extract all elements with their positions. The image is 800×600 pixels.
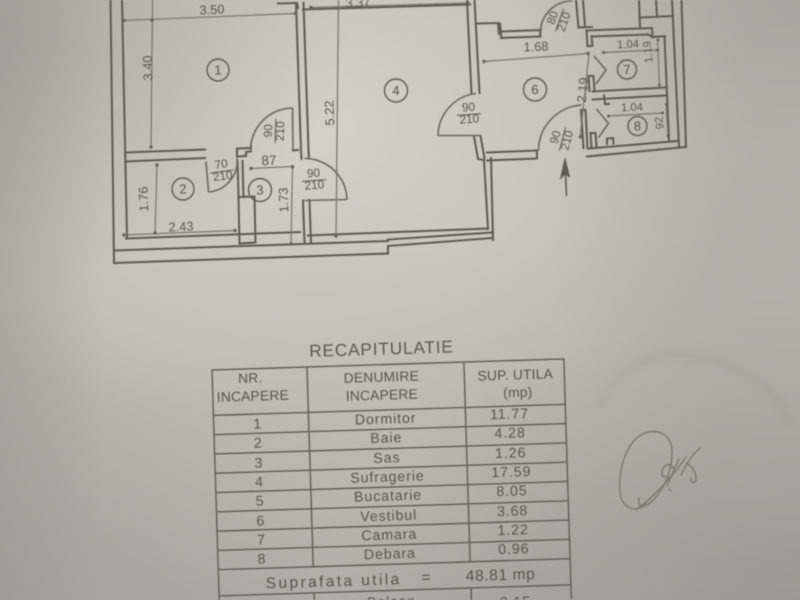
svg-text:1.04: 1.04 — [621, 102, 643, 115]
svg-text:Sas: Sas — [373, 450, 401, 467]
svg-text:Debara: Debara — [364, 546, 416, 564]
svg-text:11.77: 11.77 — [490, 406, 529, 423]
svg-text:Balcon: Balcon — [367, 594, 416, 600]
svg-text:Sufragerie: Sufragerie — [350, 468, 425, 486]
svg-text:6: 6 — [256, 513, 265, 529]
svg-text:4.28: 4.28 — [494, 425, 526, 442]
svg-text:2: 2 — [179, 181, 187, 196]
svg-text:Dormitor: Dormitor — [355, 411, 417, 429]
svg-text:INCAPERE: INCAPERE — [217, 388, 290, 405]
svg-text:1.22: 1.22 — [497, 522, 529, 539]
svg-text:3.15: 3.15 — [500, 594, 532, 600]
svg-text:3: 3 — [254, 455, 263, 471]
svg-text:SUP. UTILA: SUP. UTILA — [477, 366, 553, 383]
svg-text:2.19: 2.19 — [574, 77, 591, 103]
svg-text:INCAPERE: INCAPERE — [346, 387, 419, 404]
svg-text:(mp): (mp) — [503, 384, 533, 400]
svg-text:1.26: 1.26 — [495, 445, 527, 462]
svg-text:5.22: 5.22 — [322, 100, 338, 125]
svg-text:Bucatarie: Bucatarie — [354, 487, 423, 505]
svg-text:NR.: NR. — [238, 370, 263, 386]
svg-text:1.73: 1.73 — [276, 187, 292, 212]
svg-text:Vestibul: Vestibul — [360, 508, 417, 526]
svg-text:4: 4 — [255, 474, 264, 490]
svg-text:=: = — [421, 569, 431, 586]
svg-text:1: 1 — [214, 62, 222, 77]
svg-text:6: 6 — [531, 82, 539, 97]
svg-text:48.81 mp: 48.81 mp — [466, 566, 536, 585]
svg-text:1.76: 1.76 — [136, 186, 152, 211]
svg-text:0.96: 0.96 — [498, 541, 530, 558]
svg-text:7: 7 — [623, 62, 631, 77]
svg-text:1.68: 1.68 — [523, 39, 549, 55]
svg-text:3.68: 3.68 — [497, 503, 529, 520]
svg-text:8: 8 — [257, 551, 266, 567]
svg-text:Camara: Camara — [361, 527, 417, 545]
svg-text:3: 3 — [256, 182, 264, 197]
svg-text:Baie: Baie — [370, 430, 402, 447]
svg-text:1.19: 1.19 — [641, 40, 655, 63]
svg-text:RECAPITULATIE: RECAPITULATIE — [309, 336, 454, 361]
svg-text:2: 2 — [254, 435, 263, 451]
svg-text:1.04: 1.04 — [617, 39, 639, 52]
svg-text:3.50: 3.50 — [199, 2, 225, 18]
svg-text:17.59: 17.59 — [491, 464, 531, 481]
svg-text:4: 4 — [392, 83, 400, 98]
svg-text:8: 8 — [634, 118, 642, 133]
svg-text:3.37: 3.37 — [345, 0, 371, 10]
svg-text:5: 5 — [256, 493, 265, 509]
svg-text:87: 87 — [261, 153, 277, 169]
svg-text:1: 1 — [253, 416, 262, 432]
svg-text:7: 7 — [257, 532, 266, 548]
svg-text:92: 92 — [653, 116, 666, 130]
svg-text:Suprafata utila: Suprafata utila — [265, 571, 401, 592]
svg-text:DENUMIRE: DENUMIRE — [343, 369, 419, 386]
svg-text:2.43: 2.43 — [168, 219, 194, 235]
svg-text:3.40: 3.40 — [140, 55, 156, 80]
svg-text:8.05: 8.05 — [496, 483, 528, 500]
